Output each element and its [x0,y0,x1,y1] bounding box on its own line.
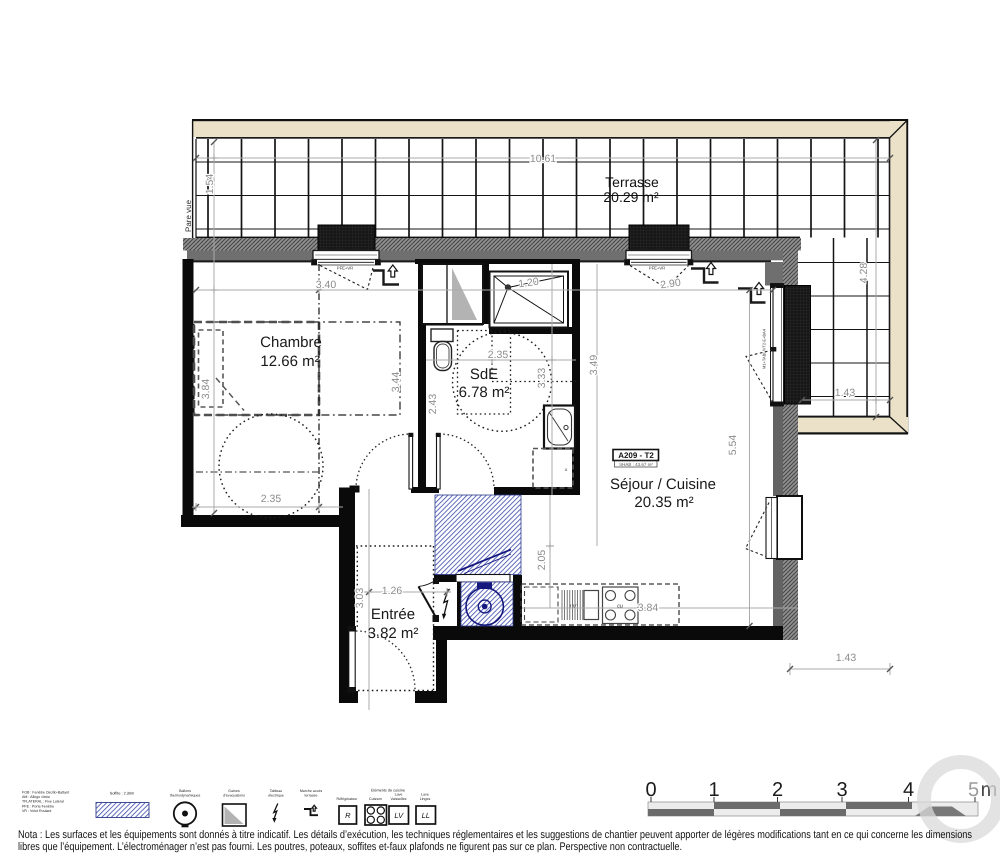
svg-text:3.82 m²: 3.82 m² [368,625,419,642]
svg-text:A209 - T2: A209 - T2 [618,451,654,460]
svg-text:SHAB : 43.67 m²: SHAB : 43.67 m² [619,462,653,467]
svg-text:3.84: 3.84 [638,602,659,614]
svg-text:20.35 m²: 20.35 m² [634,494,693,511]
svg-text:R: R [345,811,351,820]
svg-text:thermodynamiques: thermodynamiques [170,794,201,798]
svg-text:terrasse: terrasse [305,794,318,798]
svg-text:libres que l’équipement. L’éle: libres que l’équipement. L’électroménage… [18,841,682,853]
svg-text:Nota : Les surfaces et les équ: Nota : Les surfaces et les équipements s… [18,829,972,841]
svg-text:5: 5 [968,779,979,801]
svg-text:1.26: 1.26 [382,585,403,597]
svg-text:2.35: 2.35 [261,493,282,505]
svg-text:Ballons: Ballons [179,789,191,793]
svg-text:6.78 m²: 6.78 m² [459,384,510,401]
svg-text:3.33: 3.33 [536,368,548,389]
svg-text:1.43: 1.43 [836,652,857,664]
svg-text:cu: cu [617,604,623,610]
svg-text:TFLATERAL : Fixe Latéral: TFLATERAL : Fixe Latéral [22,800,64,804]
svg-text:20.29 m²: 20.29 m² [603,189,659,205]
svg-text:Soffite : 2.30m: Soffite : 2.30m [110,792,134,796]
svg-text:Terrasse: Terrasse [605,174,659,190]
svg-text:Gaines: Gaines [228,789,240,793]
svg-text:Lave: Lave [421,793,429,797]
svg-text:4.28: 4.28 [858,263,870,284]
svg-text:Tableau: Tableau [270,789,283,793]
svg-text:Cuisson: Cuisson [369,797,382,801]
svg-text:1.54: 1.54 [204,174,216,195]
svg-text:AM : Allège vitrée: AM : Allège vitrée [22,795,50,799]
svg-text:3.40: 3.40 [316,279,337,291]
svg-text:5.54: 5.54 [727,435,739,456]
svg-text:M1+TABL/VT2-E+BA4: M1+TABL/VT2-E+BA4 [762,328,767,369]
svg-text:10.61: 10.61 [530,153,556,165]
svg-text:3.49: 3.49 [588,355,600,376]
svg-text:LL: LL [422,811,430,820]
svg-text:Chambre: Chambre [260,334,322,351]
svg-text:2.35: 2.35 [488,349,509,361]
svg-text:SdE: SdE [470,366,498,383]
svg-text:3.84: 3.84 [200,379,212,400]
svg-text:PFE : Porte Fenêtre: PFE : Porte Fenêtre [22,804,54,808]
svg-text:Séjour / Cuisine: Séjour / Cuisine [610,476,716,493]
svg-text:2.43: 2.43 [427,394,439,415]
svg-text:3.03: 3.03 [354,588,366,609]
svg-text:Lave: Lave [395,793,403,797]
svg-text:Réfrigérateur: Réfrigérateur [337,797,359,801]
svg-text:2.05: 2.05 [536,550,548,571]
svg-text:FOB : Fenêtre Oscillo-Battant: FOB : Fenêtre Oscillo-Battant [22,791,69,795]
svg-text:PFE+VR: PFE+VR [649,266,665,271]
svg-text:d’évacuations: d’évacuations [223,794,245,798]
svg-text:Pare vue: Pare vue [184,199,193,232]
svg-text:u: u [565,467,568,473]
svg-text:LV: LV [394,811,404,820]
svg-text:Vaisselles: Vaisselles [391,797,407,801]
svg-text:électrique: électrique [268,794,284,798]
svg-text:Entrée: Entrée [371,606,415,623]
svg-text:Marche accès: Marche accès [300,789,323,793]
svg-text:Linges: Linges [420,797,431,801]
svg-text:3.44: 3.44 [390,372,402,393]
svg-text:12.66 m²: 12.66 m² [260,353,319,370]
svg-text:1.43: 1.43 [835,387,856,399]
svg-text:VR : Volet Roulant: VR : Volet Roulant [22,809,51,813]
svg-text:PFE+VR: PFE+VR [337,266,353,271]
